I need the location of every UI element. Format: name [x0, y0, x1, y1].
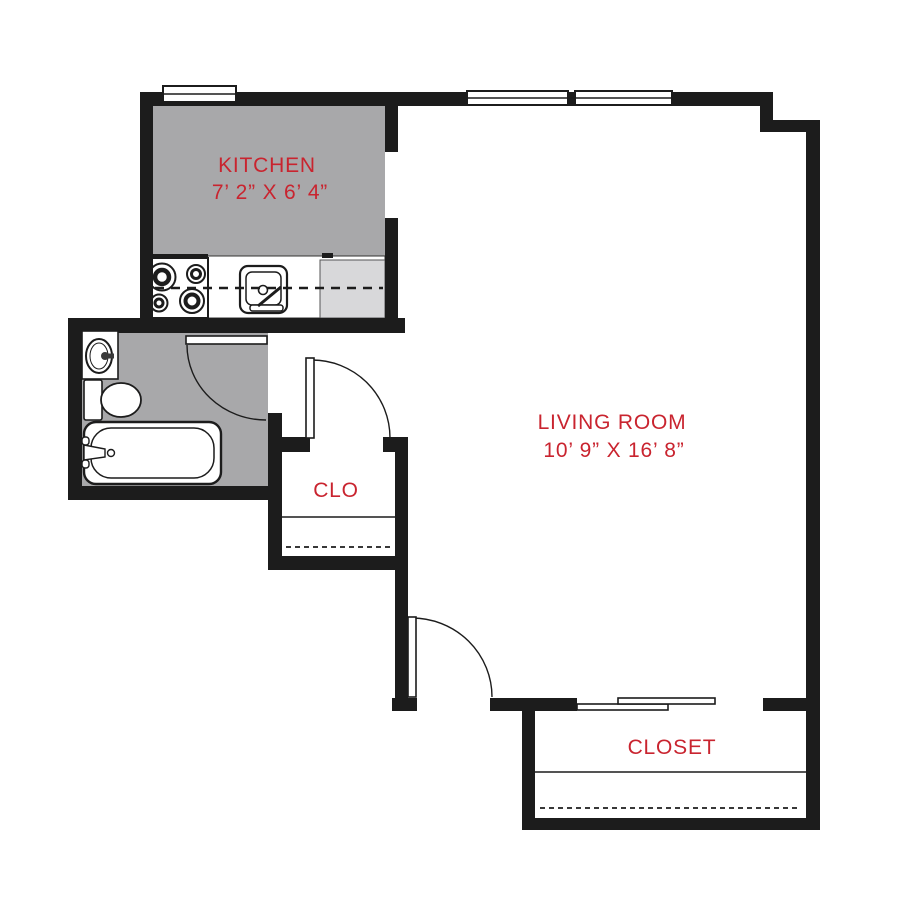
wall-kitchen-left: [140, 92, 153, 333]
living-room-label: LIVING ROOM: [538, 411, 687, 434]
floor-plan: KITCHEN 7’ 2” X 6’ 4” LIVING ROOM 10’ 9”…: [0, 0, 900, 900]
bathroom-door-icon: [186, 336, 267, 344]
clo-door-icon: [306, 358, 314, 438]
kitchen-dimensions: 7’ 2” X 6’ 4”: [212, 181, 328, 204]
sliding-panel-front: [577, 704, 668, 710]
wall-kitchen-right-upper: [385, 106, 398, 152]
range-back-edge: [147, 254, 208, 259]
wall-closet-left: [522, 711, 535, 830]
living-room-dimensions: 10’ 9” X 16’ 8”: [543, 439, 684, 462]
wall-living-left: [395, 437, 408, 711]
wall-living-bottom-2: [490, 698, 577, 711]
wall-clo-bottom: [268, 556, 408, 570]
wall-closet-bottom: [522, 818, 820, 830]
floor-plan-canvas: KITCHEN 7’ 2” X 6’ 4” LIVING ROOM 10’ 9”…: [0, 0, 900, 900]
toilet-icon: [101, 383, 141, 417]
sink-faucet-icon: [101, 352, 109, 360]
wall-living-bottom-1: [392, 698, 417, 711]
sink-ledge: [250, 305, 283, 311]
tub-handle: [82, 437, 89, 445]
wall-right: [806, 120, 820, 830]
burner-icon: [151, 295, 168, 312]
sliding-panel-back: [618, 698, 715, 704]
closet-label: CLOSET: [628, 736, 717, 759]
wall-bathroom-right: [268, 413, 282, 570]
tub-drain: [108, 450, 115, 457]
wall-kitchen-right-lower: [385, 218, 398, 333]
kitchen-sink-icon: [240, 266, 287, 313]
sink-faucet-stub: [108, 354, 114, 359]
toilet-tank: [84, 380, 102, 420]
wall-bathroom-bottom: [68, 486, 282, 500]
wall-bathroom-left: [68, 318, 82, 500]
wall-living-bottom-3: [763, 698, 806, 711]
entry-door-icon: [408, 617, 416, 697]
kitchen-counter: [147, 253, 385, 318]
burner-icon: [187, 265, 205, 283]
tub-handle: [82, 460, 89, 468]
range-burners-icon: [147, 254, 208, 318]
clo-label: CLO: [313, 479, 359, 502]
wall-clo-top-left: [268, 437, 310, 452]
counter-edge-mark: [322, 253, 333, 258]
kitchen-label: KITCHEN: [218, 154, 316, 177]
